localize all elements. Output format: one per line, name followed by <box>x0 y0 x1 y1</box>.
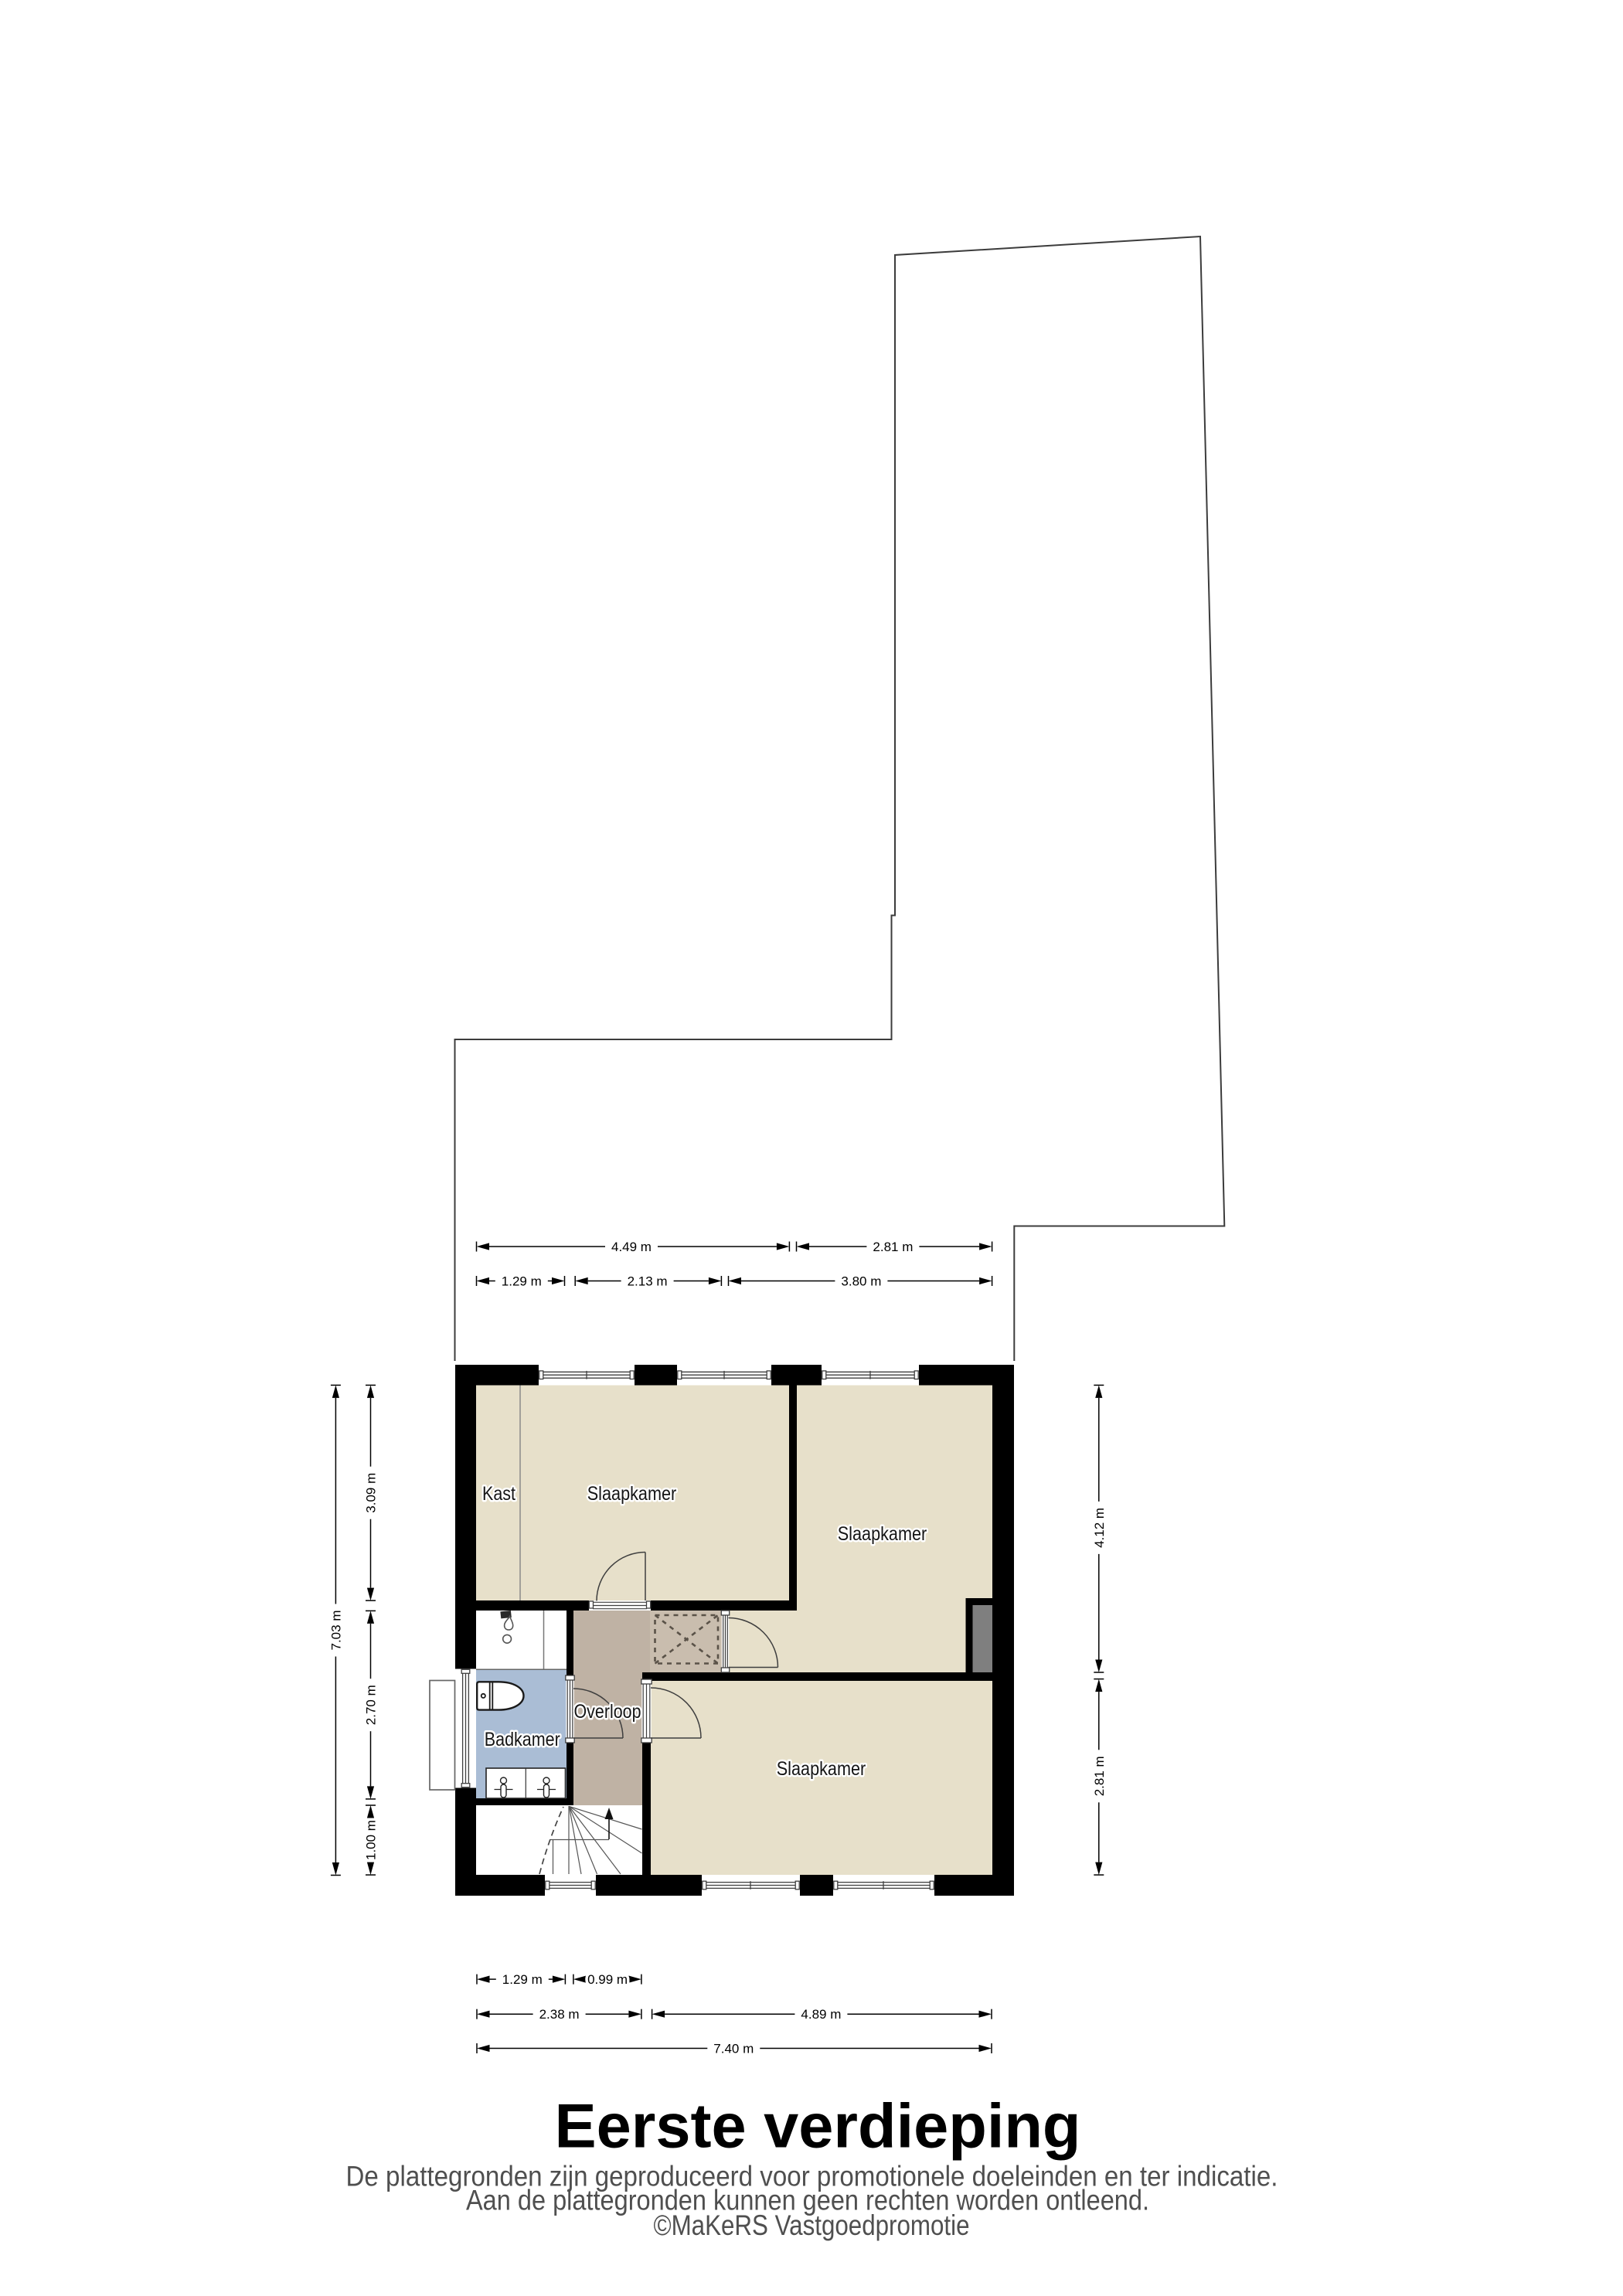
svg-text:7.03 m: 7.03 m <box>328 1611 343 1651</box>
svg-text:Slaapkamer: Slaapkamer <box>777 1758 866 1780</box>
svg-text:Badkamer: Badkamer <box>485 1729 560 1750</box>
svg-text:2.38 m: 2.38 m <box>539 2007 580 2022</box>
svg-text:3.80 m: 3.80 m <box>841 1274 881 1289</box>
svg-text:4.12 m: 4.12 m <box>1092 1508 1107 1548</box>
svg-text:©MaKeRS Vastgoedpromotie: ©MaKeRS Vastgoedpromotie <box>654 2209 970 2241</box>
svg-text:Kast: Kast <box>482 1483 515 1505</box>
svg-text:2.70 m: 2.70 m <box>364 1685 379 1725</box>
svg-text:0.99 m: 0.99 m <box>587 1972 628 1987</box>
svg-text:Eerste verdieping: Eerste verdieping <box>555 2092 1081 2162</box>
svg-text:Slaapkamer: Slaapkamer <box>587 1483 677 1505</box>
svg-text:1.29 m: 1.29 m <box>502 1972 543 1987</box>
svg-text:1.00 m: 1.00 m <box>364 1820 379 1860</box>
svg-text:4.89 m: 4.89 m <box>801 2007 841 2022</box>
svg-text:Overloop: Overloop <box>574 1701 641 1723</box>
svg-text:4.49 m: 4.49 m <box>611 1240 652 1254</box>
svg-text:3.09 m: 3.09 m <box>364 1473 379 1513</box>
svg-text:2.81 m: 2.81 m <box>1092 1756 1107 1796</box>
svg-text:7.40 m: 7.40 m <box>713 2042 754 2056</box>
svg-text:1.29 m: 1.29 m <box>502 1274 542 1289</box>
svg-text:2.13 m: 2.13 m <box>628 1274 668 1289</box>
svg-text:Slaapkamer: Slaapkamer <box>838 1523 927 1545</box>
svg-text:2.81 m: 2.81 m <box>873 1240 913 1254</box>
